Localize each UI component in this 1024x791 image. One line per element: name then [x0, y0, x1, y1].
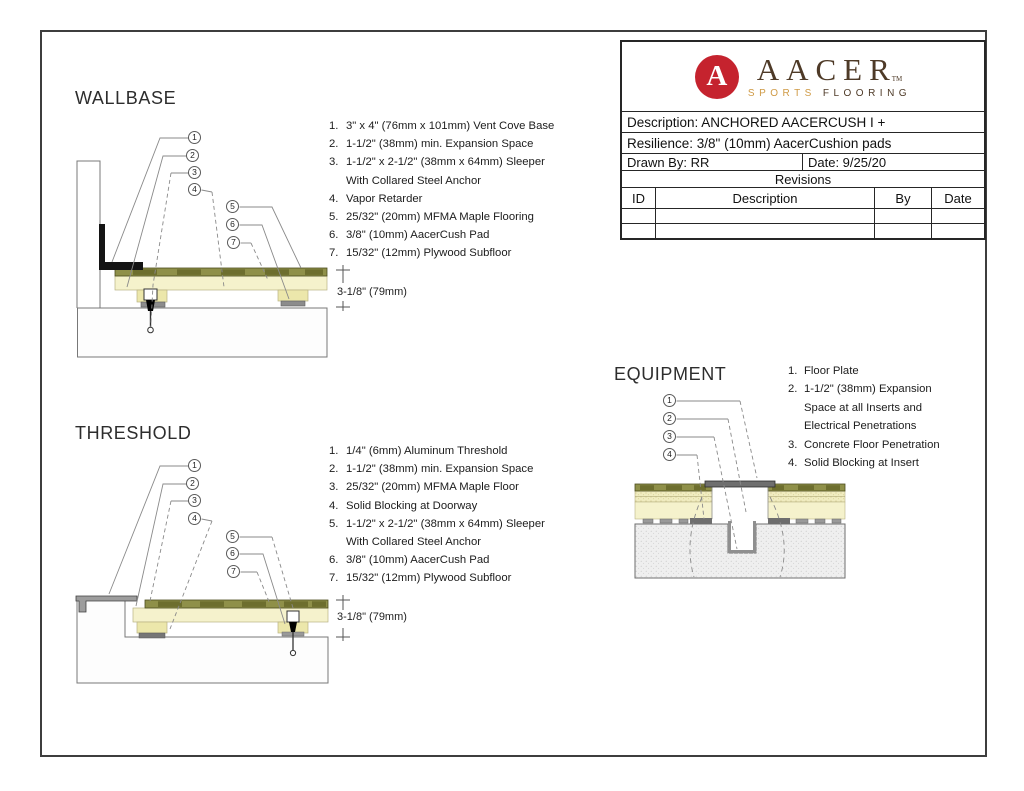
note-item: With Collared Steel Anchor	[329, 533, 545, 551]
threshold-callout-5: 5	[226, 530, 239, 543]
threshold-callout-3: 3	[188, 494, 201, 507]
col-id: ID	[622, 188, 656, 208]
wallbase-callout-2: 2	[186, 149, 199, 162]
note-item: 6.3/8" (10mm) AacerCush Pad	[329, 226, 554, 244]
note-item: 5.25/32" (20mm) MFMA Maple Flooring	[329, 208, 554, 226]
note-item: 5.1-1/2" x 2-1/2" (38mm x 64mm) Sleeper	[329, 515, 545, 533]
equipment-callout-4: 4	[663, 448, 676, 461]
threshold-notes: 1.1/4" (6mm) Aluminum Threshold 2.1-1/2"…	[329, 442, 545, 588]
note-item: 1.Floor Plate	[788, 362, 940, 380]
note-item: 1.3" x 4" (76mm x 101mm) Vent Cove Base	[329, 117, 554, 135]
threshold-callout-7: 7	[227, 565, 240, 578]
note-item: 6.3/8" (10mm) AacerCush Pad	[329, 551, 545, 569]
vent-cove-base-shape	[99, 224, 143, 270]
equipment-callout-3: 3	[663, 430, 676, 443]
col-by: By	[875, 188, 932, 208]
note-item: 2.1-1/2" (38mm) Expansion	[788, 380, 940, 398]
note-item: 1.1/4" (6mm) Aluminum Threshold	[329, 442, 545, 460]
wallbase-callout-3: 3	[188, 166, 201, 179]
note-item: 3.Concrete Floor Penetration	[788, 436, 940, 454]
threshold-callout-2: 2	[186, 477, 199, 490]
note-item: 4.Solid Blocking at Insert	[788, 454, 940, 472]
note-item: With Collared Steel Anchor	[329, 172, 554, 190]
revisions-header: Revisions	[622, 171, 984, 188]
note-item: 3.25/32" (20mm) MFMA Maple Floor	[329, 478, 545, 496]
wallbase-title: WALLBASE	[75, 88, 176, 109]
wallbase-callout-7: 7	[227, 236, 240, 249]
wallbase-callout-1: 1	[188, 131, 201, 144]
revisions-empty-row	[622, 224, 984, 238]
equipment-title: EQUIPMENT	[614, 364, 726, 385]
equipment-notes: 1.Floor Plate 2.1-1/2" (38mm) Expansion …	[788, 362, 940, 472]
wallbase-callout-4: 4	[188, 183, 201, 196]
note-item: 2.1-1/2" (38mm) min. Expansion Space	[329, 135, 554, 153]
threshold-callout-1: 1	[188, 459, 201, 472]
note-item: Space at all Inserts and	[788, 399, 940, 417]
revisions-empty-row	[622, 209, 984, 224]
logo: A AACER TM SPORTS FLOORING	[622, 42, 984, 112]
equipment-callout-1: 1	[663, 394, 676, 407]
wallbase-callout-6: 6	[226, 218, 239, 231]
titleblock-resilience: Resilience: 3/8" (10mm) AacerCushion pad…	[622, 133, 984, 154]
threshold-callout-4: 4	[188, 512, 201, 525]
col-date: Date	[932, 188, 984, 208]
titleblock-description: Description: ANCHORED AACERCUSH I +	[622, 112, 984, 133]
wallbase-callout-5: 5	[226, 200, 239, 213]
note-item: 4.Vapor Retarder	[329, 190, 554, 208]
titleblock-date: Date: 9/25/20	[803, 154, 984, 170]
trademark-symbol: TM	[892, 76, 903, 85]
tagline-sports: SPORTS	[748, 88, 816, 99]
note-item: 4.Solid Blocking at Doorway	[329, 497, 545, 515]
wallbase-notes: 1.3" x 4" (76mm x 101mm) Vent Cove Base …	[329, 117, 554, 263]
aacer-logo-mark-icon: A	[695, 55, 739, 99]
equipment-callout-2: 2	[663, 412, 676, 425]
col-description: Description	[656, 188, 875, 208]
wallbase-dimension-label: 3-1/8" (79mm)	[336, 286, 408, 298]
revisions-column-headers: ID Description By Date	[622, 188, 984, 209]
note-item: 3.1-1/2" x 2-1/2" (38mm x 64mm) Sleeper	[329, 153, 554, 171]
note-item: 2.1-1/2" (38mm) min. Expansion Space	[329, 460, 545, 478]
note-item: Electrical Penetrations	[788, 417, 940, 435]
title-block: A AACER TM SPORTS FLOORING Description: …	[620, 40, 986, 240]
note-item: 7.15/32" (12mm) Plywood Subfloor	[329, 569, 545, 587]
drawing-sheet-canvas: WALLBASE	[0, 0, 1024, 791]
threshold-callout-6: 6	[226, 547, 239, 560]
threshold-title: THRESHOLD	[75, 423, 191, 444]
tagline-flooring: FLOORING	[823, 88, 911, 99]
note-item: 7.15/32" (12mm) Plywood Subfloor	[329, 244, 554, 262]
titleblock-drawn-by: Drawn By: RR	[622, 154, 803, 170]
threshold-dimension-label: 3-1/8" (79mm)	[336, 611, 408, 623]
brand-name: AACER	[757, 54, 897, 85]
